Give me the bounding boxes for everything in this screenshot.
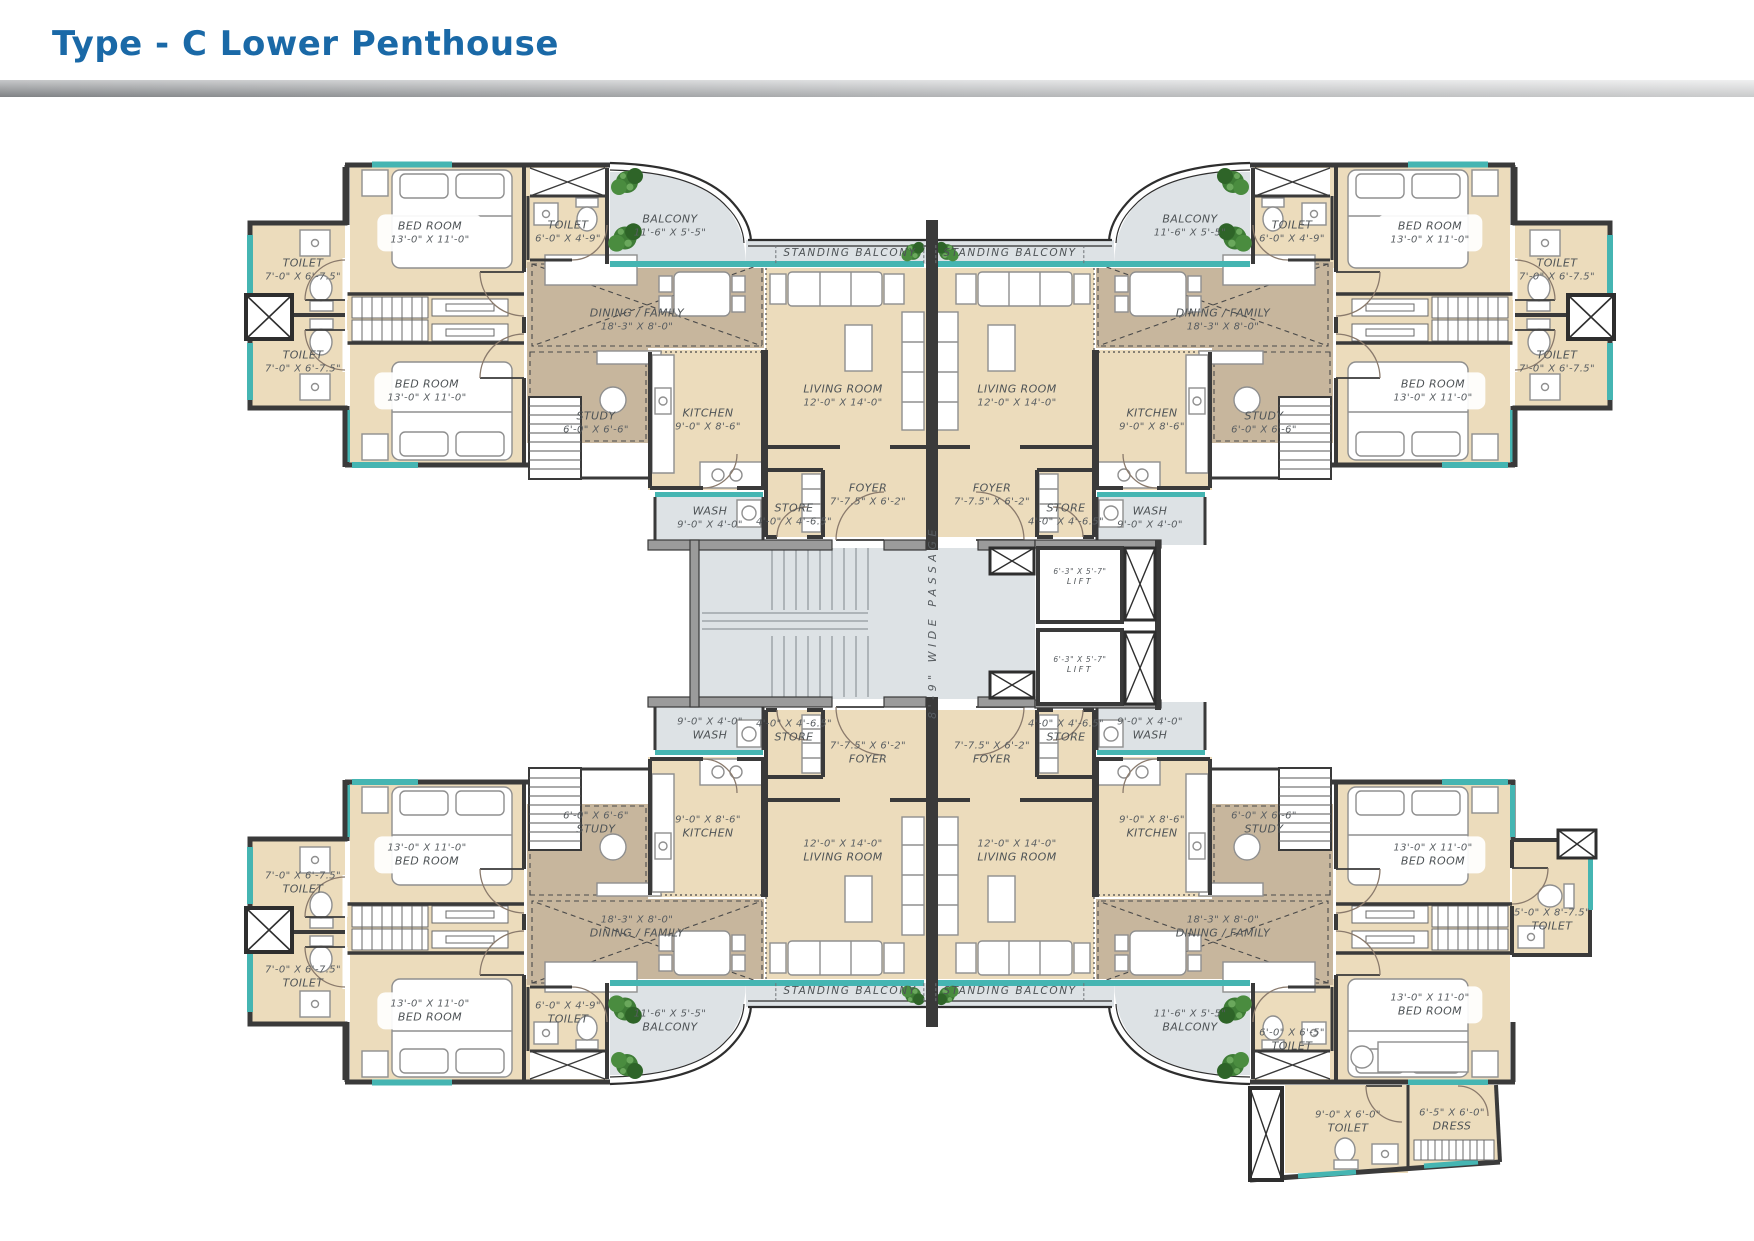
- room-label-toilet: TOILET6'-0" X 4'-9": [1259, 218, 1325, 245]
- room-label-dining: DINING / FAMILY18'-3" X 8'-0": [590, 306, 684, 333]
- room-label-balcony: BALCONY11'-6" X 5'-5": [634, 1007, 707, 1034]
- room-label-toilet: TOILET6'-0" X 6'-5": [1259, 1026, 1325, 1053]
- room-label-toilet: TOILET7'-0" X 6'-7.5": [265, 963, 341, 990]
- room-label-balcony: BALCONY11'-6" X 5'-5": [1154, 1007, 1227, 1034]
- room-label-toilet: TOILET6'-0" X 4'-9": [535, 218, 601, 245]
- room-label-toilet: TOILET7'-0" X 6'-7.5": [265, 869, 341, 896]
- room-label-bedroom: BED ROOM13'-0" X 11'-0": [374, 836, 479, 873]
- room-label-wash: WASH9'-0" X 4'-0": [1117, 715, 1183, 742]
- central-wall-bottom: [926, 697, 938, 1027]
- room-label-bedroom: BED ROOM13'-0" X 11'-0": [1377, 986, 1482, 1023]
- br-attached-toilet: [1512, 830, 1596, 955]
- room-label-kitchen: KITCHEN9'-0" X 8'-6": [1119, 406, 1185, 433]
- room-label-toilet: TOILET7'-0" X 6'-7.5": [1519, 348, 1595, 375]
- room-label-foyer: FOYER7'-7.5" X 6'-2": [954, 739, 1030, 766]
- room-label-lift: 6'-3" X 5'-7"LIFT: [1053, 655, 1106, 675]
- room-label-kitchen: KITCHEN9'-0" X 8'-6": [675, 406, 741, 433]
- room-label-toilet: TOILET7'-0" X 6'-7.5": [1519, 256, 1595, 283]
- room-label-store: STORE4'-0" X 4'-6.5": [756, 501, 832, 528]
- room-label-study: STUDY6'-0" X 6'-6": [1231, 409, 1297, 436]
- room-label-standing-balcony: STANDING BALCONY: [935, 983, 1084, 1001]
- room-label-balcony: BALCONY11'-6" X 5'-5": [1154, 212, 1227, 239]
- room-label-dress: DRESS6'-5" X 6'-0": [1419, 1106, 1485, 1133]
- room-label-toilet: TOILET7'-0" X 6'-7.5": [265, 256, 341, 283]
- room-label-toilet: TOILET9'-0" X 6'-0": [1315, 1108, 1381, 1135]
- room-label-standing-balcony: STANDING BALCONY: [775, 983, 924, 1001]
- room-label-dining: DINING / FAMILY18'-3" X 8'-0": [590, 913, 684, 940]
- room-label-foyer: FOYER7'-7.5" X 6'-2": [830, 739, 906, 766]
- room-label-store: STORE4'-0" X 4'-6.5": [756, 717, 832, 744]
- unit-bottom-left: [246, 702, 926, 1086]
- room-label-balcony: BALCONY11'-6" X 5'-5": [634, 212, 707, 239]
- room-label-living: LIVING ROOM12'-0" X 14'-0": [803, 382, 882, 409]
- page-title: Type - C Lower Penthouse: [52, 24, 559, 64]
- room-label-standing-balcony: STANDING BALCONY: [935, 245, 1084, 263]
- room-label-wash: WASH9'-0" X 4'-0": [677, 504, 743, 531]
- room-label-foyer: FOYER7'-7.5" X 6'-2": [954, 481, 1030, 508]
- room-label-lift: 6'-3" X 5'-7"LIFT: [1053, 567, 1106, 587]
- room-label-bedroom: BED ROOM13'-0" X 11'-0": [1380, 836, 1485, 873]
- floor-plan: TOILET7'-0" X 6'-7.5" TOILET7'-0" X 6'-7…: [0, 0, 1754, 1241]
- room-label-foyer: FOYER7'-7.5" X 6'-2": [830, 481, 906, 508]
- room-label-living: LIVING ROOM12'-0" X 14'-0": [803, 837, 882, 864]
- room-label-wash: WASH9'-0" X 4'-0": [1117, 504, 1183, 531]
- room-label-toilet: TOILET7'-0" X 6'-7.5": [265, 348, 341, 375]
- room-label-dining: DINING / FAMILY18'-3" X 8'-0": [1176, 913, 1270, 940]
- room-label-standing-balcony: STANDING BALCONY: [775, 245, 924, 263]
- central-wall-top: [926, 220, 938, 550]
- room-label-kitchen: KITCHEN9'-0" X 8'-6": [675, 813, 741, 840]
- room-label-store: STORE4'-0" X 4'-6.5": [1028, 717, 1104, 744]
- room-label-toilet: TOILET6'-0" X 4'-9": [535, 999, 601, 1026]
- room-label-study: STUDY6'-0" X 6'-6": [1231, 809, 1297, 836]
- floor-plan-canvas: [0, 0, 1754, 1241]
- room-label-toilet: TOILET5'-0" X 8'-7.5": [1514, 906, 1590, 933]
- room-label-living: LIVING ROOM12'-0" X 14'-0": [977, 382, 1056, 409]
- room-label-study: STUDY6'-0" X 6'-6": [563, 809, 629, 836]
- room-label-bedroom: BED ROOM13'-0" X 11'-0": [374, 372, 479, 409]
- room-label-bedroom: BED ROOM13'-0" X 11'-0": [1380, 372, 1485, 409]
- title-divider-bar: [0, 80, 1754, 97]
- room-label-kitchen: KITCHEN9'-0" X 8'-6": [1119, 813, 1185, 840]
- passage-label: 8'-9" WIDE PASSAGE: [926, 525, 940, 719]
- room-label-dining: DINING / FAMILY18'-3" X 8'-0": [1176, 306, 1270, 333]
- room-label-bedroom: BED ROOM13'-0" X 11'-0": [1377, 214, 1482, 251]
- room-label-bedroom: BED ROOM13'-0" X 11'-0": [377, 992, 482, 1029]
- room-label-wash: WASH9'-0" X 4'-0": [677, 715, 743, 742]
- room-label-living: LIVING ROOM12'-0" X 14'-0": [977, 837, 1056, 864]
- room-label-store: STORE4'-0" X 4'-6.5": [1028, 501, 1104, 528]
- room-label-study: STUDY6'-0" X 6'-6": [563, 409, 629, 436]
- room-label-bedroom: BED ROOM13'-0" X 11'-0": [377, 214, 482, 251]
